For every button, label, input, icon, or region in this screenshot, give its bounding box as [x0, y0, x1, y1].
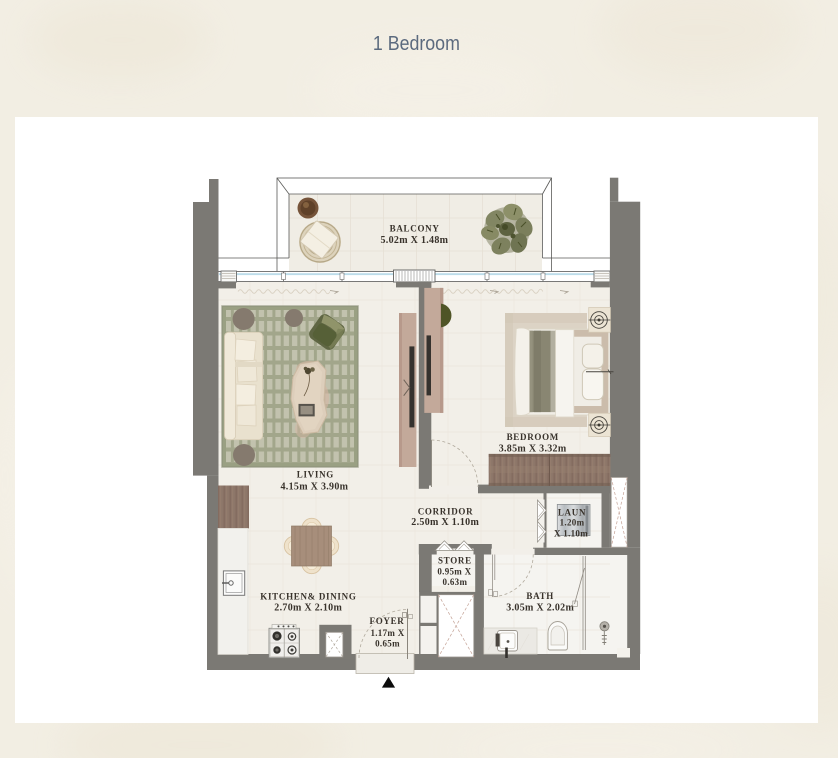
svg-text:2.70m X 2.10m: 2.70m X 2.10m — [274, 603, 342, 614]
svg-text:1 Bedroom: 1 Bedroom — [373, 32, 460, 55]
svg-text:FOYER: FOYER — [370, 616, 405, 626]
svg-text:4.15m X 3.90m: 4.15m X 3.90m — [281, 481, 349, 492]
svg-text:STORE: STORE — [438, 556, 472, 566]
svg-text:X 1.10m: X 1.10m — [554, 529, 588, 539]
svg-text:CORRIDOR: CORRIDOR — [418, 506, 474, 516]
svg-text:BEDROOM: BEDROOM — [507, 432, 559, 442]
svg-text:1.20m: 1.20m — [560, 518, 585, 528]
svg-text:0.65m: 0.65m — [375, 639, 400, 649]
svg-text:3.85m X 3.32m: 3.85m X 3.32m — [499, 443, 567, 454]
svg-text:1.17m X: 1.17m X — [370, 628, 404, 638]
svg-text:BATH: BATH — [526, 591, 554, 601]
svg-text:LIVING: LIVING — [297, 469, 334, 479]
svg-text:0.63m: 0.63m — [443, 577, 468, 587]
svg-text:2.50m X 1.10m: 2.50m X 1.10m — [411, 517, 479, 528]
svg-text:KITCHEN& DINING: KITCHEN& DINING — [260, 591, 356, 601]
svg-text:BALCONY: BALCONY — [390, 223, 440, 233]
svg-text:5.02m X 1.48m: 5.02m X 1.48m — [381, 235, 449, 246]
svg-text:3.05m X 2.02m: 3.05m X 2.02m — [506, 602, 574, 613]
svg-text:LAUN: LAUN — [558, 508, 586, 518]
svg-text:0.95m X: 0.95m X — [437, 566, 471, 576]
